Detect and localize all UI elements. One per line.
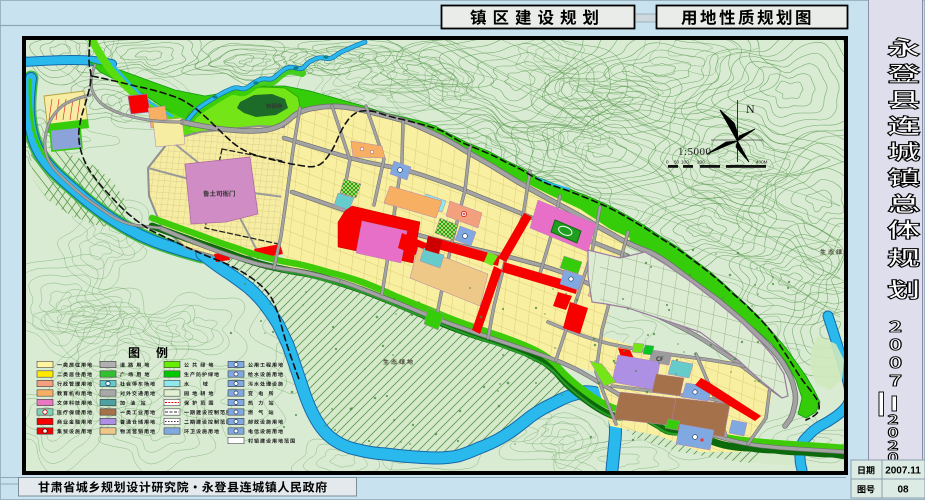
svg-text:N: N bbox=[746, 102, 755, 116]
svg-text:08: 08 bbox=[897, 485, 909, 496]
svg-text:100: 100 bbox=[681, 160, 689, 165]
svg-text:50: 50 bbox=[674, 160, 680, 165]
svg-text:400M: 400M bbox=[756, 160, 768, 165]
svg-text:0: 0 bbox=[666, 160, 669, 165]
svg-text:1:5000: 1:5000 bbox=[678, 146, 712, 158]
svg-text:200: 200 bbox=[697, 160, 705, 165]
svg-text:2007.11: 2007.11 bbox=[885, 466, 921, 477]
